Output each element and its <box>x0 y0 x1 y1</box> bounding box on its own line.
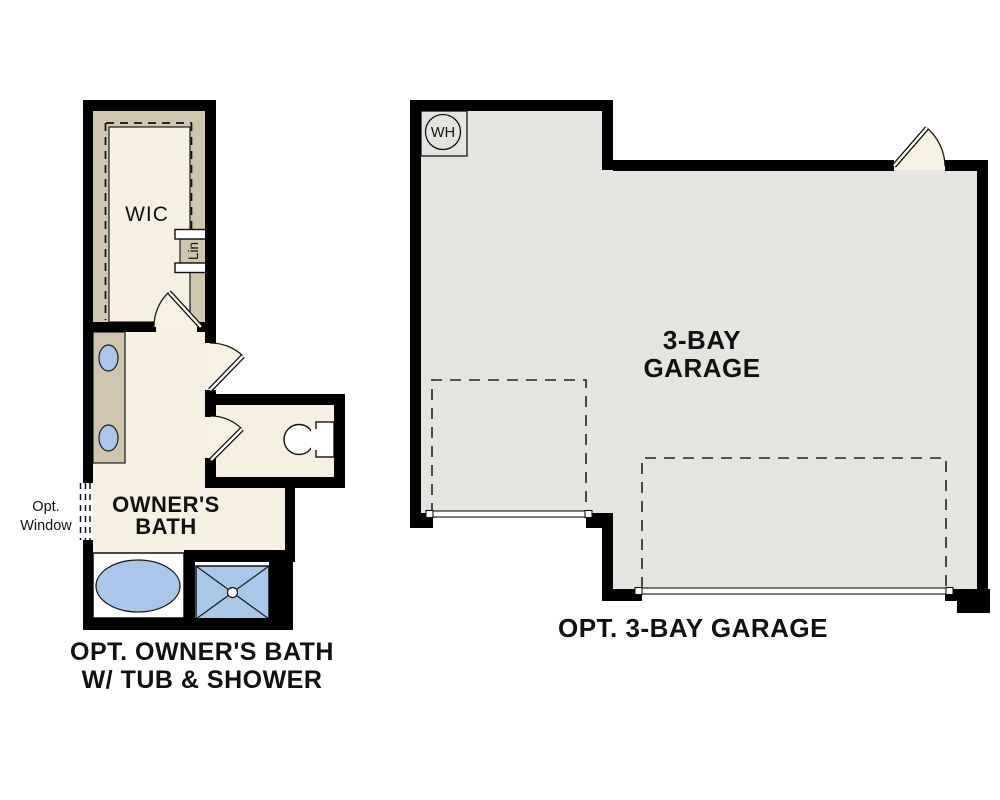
g-wall-right <box>977 160 988 613</box>
wall-shower-corner-block <box>269 560 293 630</box>
shower <box>196 566 269 619</box>
window-label-line1: Opt. <box>32 499 59 515</box>
garage-door-2-panel <box>638 588 950 594</box>
g-wall-top-right-a <box>613 160 894 171</box>
g-corner-block <box>957 589 990 613</box>
wall-top <box>83 100 216 111</box>
g-wall-step-top <box>602 100 613 170</box>
bath-caption-line1: OPT. OWNER'S BATH <box>70 638 334 666</box>
linen-shelf-top <box>175 230 210 240</box>
wall-left-lower <box>83 540 93 630</box>
bath-entry-door <box>210 343 243 390</box>
toilet-neck <box>311 429 318 450</box>
bath-label-line2: BATH <box>135 514 196 539</box>
bathtub <box>93 553 184 618</box>
wall-stub-lower <box>205 458 216 488</box>
tub-basin <box>96 560 180 612</box>
g-wall-left <box>410 100 421 528</box>
linen-shelf-bottom <box>175 263 210 273</box>
garage-label-line2: GARAGE <box>643 353 760 383</box>
garage-entry-door <box>894 128 945 170</box>
garage-door-1-jamb-right <box>585 511 592 518</box>
toilet-wall-top <box>205 394 345 405</box>
garage-door-1-panel <box>429 511 589 517</box>
linen-label: Lin <box>186 242 201 260</box>
wic-label: WIC <box>125 203 169 226</box>
wall-wic-bath-left <box>93 322 156 332</box>
sink-1 <box>99 345 118 371</box>
garage-door-2-jamb-left <box>635 588 642 595</box>
toilet-tank <box>316 422 334 457</box>
shower-drain <box>228 588 238 598</box>
garage-door-1 <box>426 511 592 518</box>
bath-caption-line2: W/ TUB & SHOWER <box>82 666 323 694</box>
floorplan-canvas: Lin <box>0 0 1000 800</box>
water-heater: WH <box>421 111 467 156</box>
g-wall-top-left <box>410 100 613 111</box>
linen-closet: Lin <box>175 230 210 273</box>
water-heater-label: WH <box>431 125 455 141</box>
bath-plan: Lin <box>20 100 345 694</box>
garage-door-1-jamb-left <box>426 511 433 518</box>
wall-tub-shower-divider <box>184 550 195 630</box>
wall-right-wic <box>205 100 216 343</box>
g-wall-step-bottom <box>602 513 613 600</box>
vanity <box>93 332 125 463</box>
garage-door-2 <box>635 588 953 595</box>
sink-2 <box>99 425 118 451</box>
toilet-wall-bottom <box>205 477 345 488</box>
garage-label-line1: 3-BAY <box>663 325 741 355</box>
window-label-line2: Window <box>20 518 72 534</box>
toilet-wall-right <box>334 394 345 488</box>
garage-caption: OPT. 3-BAY GARAGE <box>558 613 828 643</box>
optional-window <box>79 483 91 540</box>
wall-left-upper <box>83 100 93 483</box>
garage-plan: WH <box>410 100 990 643</box>
floorplan-svg: Lin <box>0 0 1000 800</box>
garage-door-2-jamb-right <box>946 588 953 595</box>
toilet-bowl <box>284 425 314 455</box>
